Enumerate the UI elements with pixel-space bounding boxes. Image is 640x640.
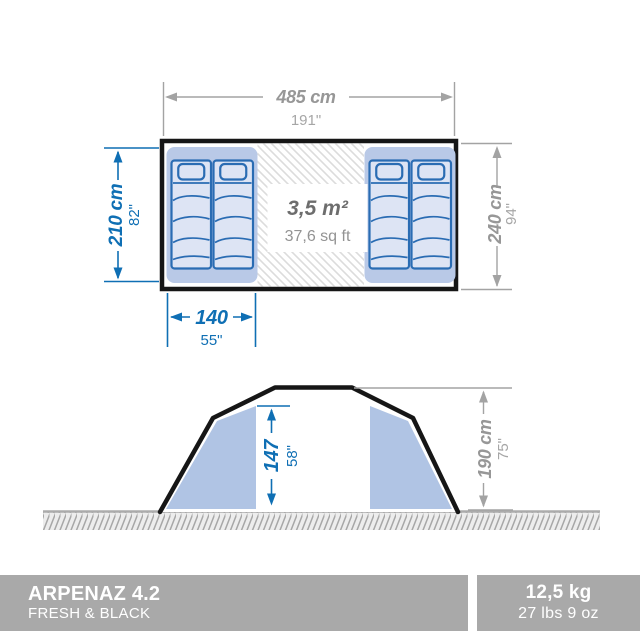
cabin-width-imperial: 55" [200,332,222,349]
mattress [412,161,452,269]
total-height-imperial: 75" [495,438,512,460]
product-dimension-sheet: 3,5 m² 37,6 sq ft 485 cm 191" 240 cm 94" [0,0,640,640]
product-weight-banner: 12,5 kg 27 lbs 9 oz [477,575,640,631]
width-metric: 485 cm [275,87,336,107]
floor-plan-top-view: 3,5 m² 37,6 sq ft 485 cm 191" 240 cm 94" [104,82,520,349]
mattress [214,161,254,269]
arrow-up-icon [493,146,502,158]
ground-hatch [43,511,600,530]
weight-metric: 12,5 kg [526,583,592,604]
arrow-up-icon [114,151,123,163]
cabin-length-metric: 210 cm [106,183,127,247]
cabin-width-metric: 140 [195,307,228,329]
product-name: ARPENAZ 4.2 [28,583,160,605]
mattress [172,161,212,269]
arrow-right-icon [241,313,253,322]
tent-diagrams: 3,5 m² 37,6 sq ft 485 cm 191" 240 cm 94" [0,0,640,575]
interior-height-metric: 147 [261,439,283,473]
mattress [370,161,410,269]
depth-imperial: 94" [503,203,520,225]
living-area-metric: 3,5 m² [287,197,349,220]
living-area-imperial: 37,6 sq ft [285,228,351,245]
width-imperial: 191" [291,112,321,129]
arrow-up-icon [479,391,488,403]
total-height-metric: 190 cm [475,419,495,479]
arrow-down-icon [479,496,488,508]
arrow-right-icon [441,93,453,102]
interior-height-imperial: 58" [284,445,301,467]
arrow-left-icon [170,313,182,322]
cabin-length-imperial: 82" [126,204,143,226]
product-variant: FRESH & BLACK [28,605,150,623]
arrow-down-icon [493,275,502,287]
arrow-left-icon [165,93,177,102]
weight-imperial: 27 lbs 9 oz [518,604,599,623]
elevation-side-view: 147 58" 190 cm 75" [43,388,600,531]
arrow-down-icon [114,268,123,280]
product-name-banner: ARPENAZ 4.2 FRESH & BLACK [0,575,468,631]
depth-metric: 240 cm [485,184,505,245]
